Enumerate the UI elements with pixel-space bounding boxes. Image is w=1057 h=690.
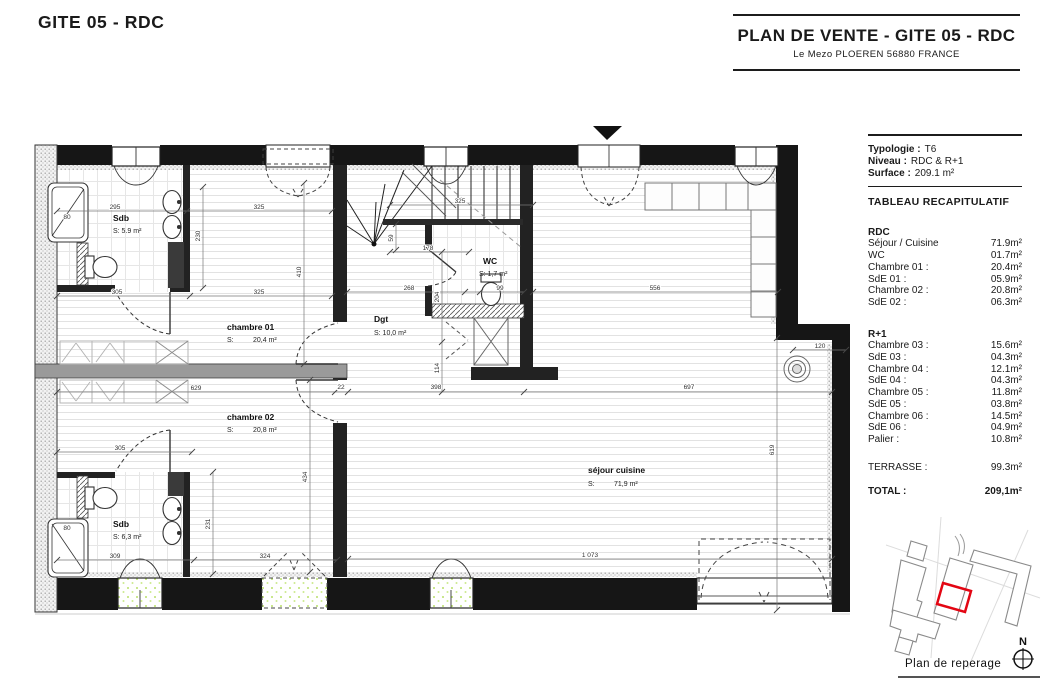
area-row: Chambre 06 :14.5m²: [868, 411, 1022, 423]
partition-wall: [35, 364, 347, 378]
room-name: chambre 01: [227, 322, 275, 332]
dimension-label: 230: [195, 230, 202, 241]
dimension-label: 556: [650, 285, 661, 292]
dimension-label: 178: [423, 245, 434, 252]
dimension-label: 305: [112, 289, 123, 296]
terrasse-row: TERRASSE :99.3m²: [868, 462, 1022, 474]
north-compass-icon: [1012, 648, 1034, 670]
surface-value: 209.1 m²: [915, 168, 954, 180]
room-name: Sdb: [113, 213, 129, 223]
entrance-arrow: [593, 126, 622, 140]
room-name: chambre 02: [227, 412, 275, 422]
dimension-label: 398: [431, 384, 442, 391]
duct-shaft: [432, 304, 524, 318]
dimension-label: 305: [115, 445, 126, 452]
typologie-label: Typologie :: [868, 144, 921, 156]
dimension-label: 629: [191, 385, 202, 392]
site-map: N Plan de reperage: [886, 517, 1040, 677]
niveau-label: Niveau :: [868, 156, 907, 168]
room-name: Dgt: [374, 314, 388, 324]
area-row: Séjour / Cuisine71.9m²: [868, 238, 1022, 250]
section-title-rdc: RDC: [868, 227, 1022, 239]
dimension-label: 410: [296, 266, 303, 277]
area-row: Chambre 05 :11.8m²: [868, 387, 1022, 399]
area-row: Palier :10.8m²: [868, 434, 1022, 446]
room-name: séjour cuisine: [588, 465, 645, 475]
total-row: TOTAL :209,1m²: [868, 486, 1022, 498]
dimension-label: 309: [110, 553, 121, 560]
area-row: SdE 02 :06.3m²: [868, 297, 1022, 309]
area-row: Chambre 01 :20.4m²: [868, 262, 1022, 274]
dimension-label: 325: [254, 204, 265, 211]
summary-panel: Typologie :T6 Niveau :RDC & R+1 Surface …: [868, 134, 1022, 498]
dimension-label: 114: [434, 362, 441, 373]
dimension-label: 324: [260, 553, 271, 560]
room-name: Sdb: [113, 519, 129, 529]
driveway-curve: [955, 534, 964, 556]
surface-label: Surface :: [868, 168, 911, 180]
area-row: SdE 01 :05.9m²: [868, 274, 1022, 286]
area-row: WC01.7m²: [868, 250, 1022, 262]
niveau-value: RDC & R+1: [911, 156, 964, 168]
dimension-label: 295: [110, 204, 121, 211]
dimension-label: 325: [254, 289, 265, 296]
typology-block: Typologie :T6 Niveau :RDC & R+1 Surface …: [868, 134, 1022, 180]
area-row: Chambre 04 :12.1m²: [868, 364, 1022, 376]
area-row: SdE 06 :04.9m²: [868, 422, 1022, 434]
area-row: Chambre 02 :20.8m²: [868, 285, 1022, 297]
room-area: S: 10,0 m²: [374, 330, 407, 337]
typologie-value: T6: [925, 144, 937, 156]
area-row: SdE 03 :04.3m²: [868, 352, 1022, 364]
section-title-r1: R+1: [868, 329, 1022, 341]
room-area: S: 6,3 m²: [113, 534, 142, 541]
dimension-label: 231: [205, 518, 212, 529]
dimension-label: 1 073: [582, 552, 599, 559]
area-row: Chambre 03 :15.6m²: [868, 340, 1022, 352]
dimension-label: 204: [434, 291, 441, 302]
room-area: S: 1,7 m²: [479, 271, 508, 278]
dimension-label: 434: [302, 471, 309, 482]
dimension-label: 268: [404, 285, 415, 292]
room-name: WC: [483, 256, 497, 266]
area-row: SdE 05 :03.8m²: [868, 399, 1022, 411]
dimension-label: 325: [455, 198, 466, 205]
plan-de-vente-sheet: GITE 05 - RDC PLAN DE VENTE - GITE 05 - …: [0, 0, 1057, 690]
area-row: SdE 04 :04.3m²: [868, 375, 1022, 387]
table-title: TABLEAU RECAPITULATIF: [868, 197, 1022, 209]
dimension-label: 697: [684, 384, 695, 391]
north-label: N: [1019, 636, 1027, 648]
dimension-label: 80: [63, 214, 71, 221]
dimension-label: 22: [337, 384, 345, 391]
dimension-label: 120: [815, 343, 826, 350]
room-area: S: 5.9 m²: [113, 228, 142, 235]
dimension-label: 59: [388, 234, 395, 242]
panel-divider: [868, 186, 1022, 187]
dimension-label: 619: [769, 444, 776, 455]
reperage-label: Plan de reperage: [905, 658, 1001, 670]
dimension-label: 99: [496, 285, 504, 292]
dimension-label: 80: [63, 525, 71, 532]
